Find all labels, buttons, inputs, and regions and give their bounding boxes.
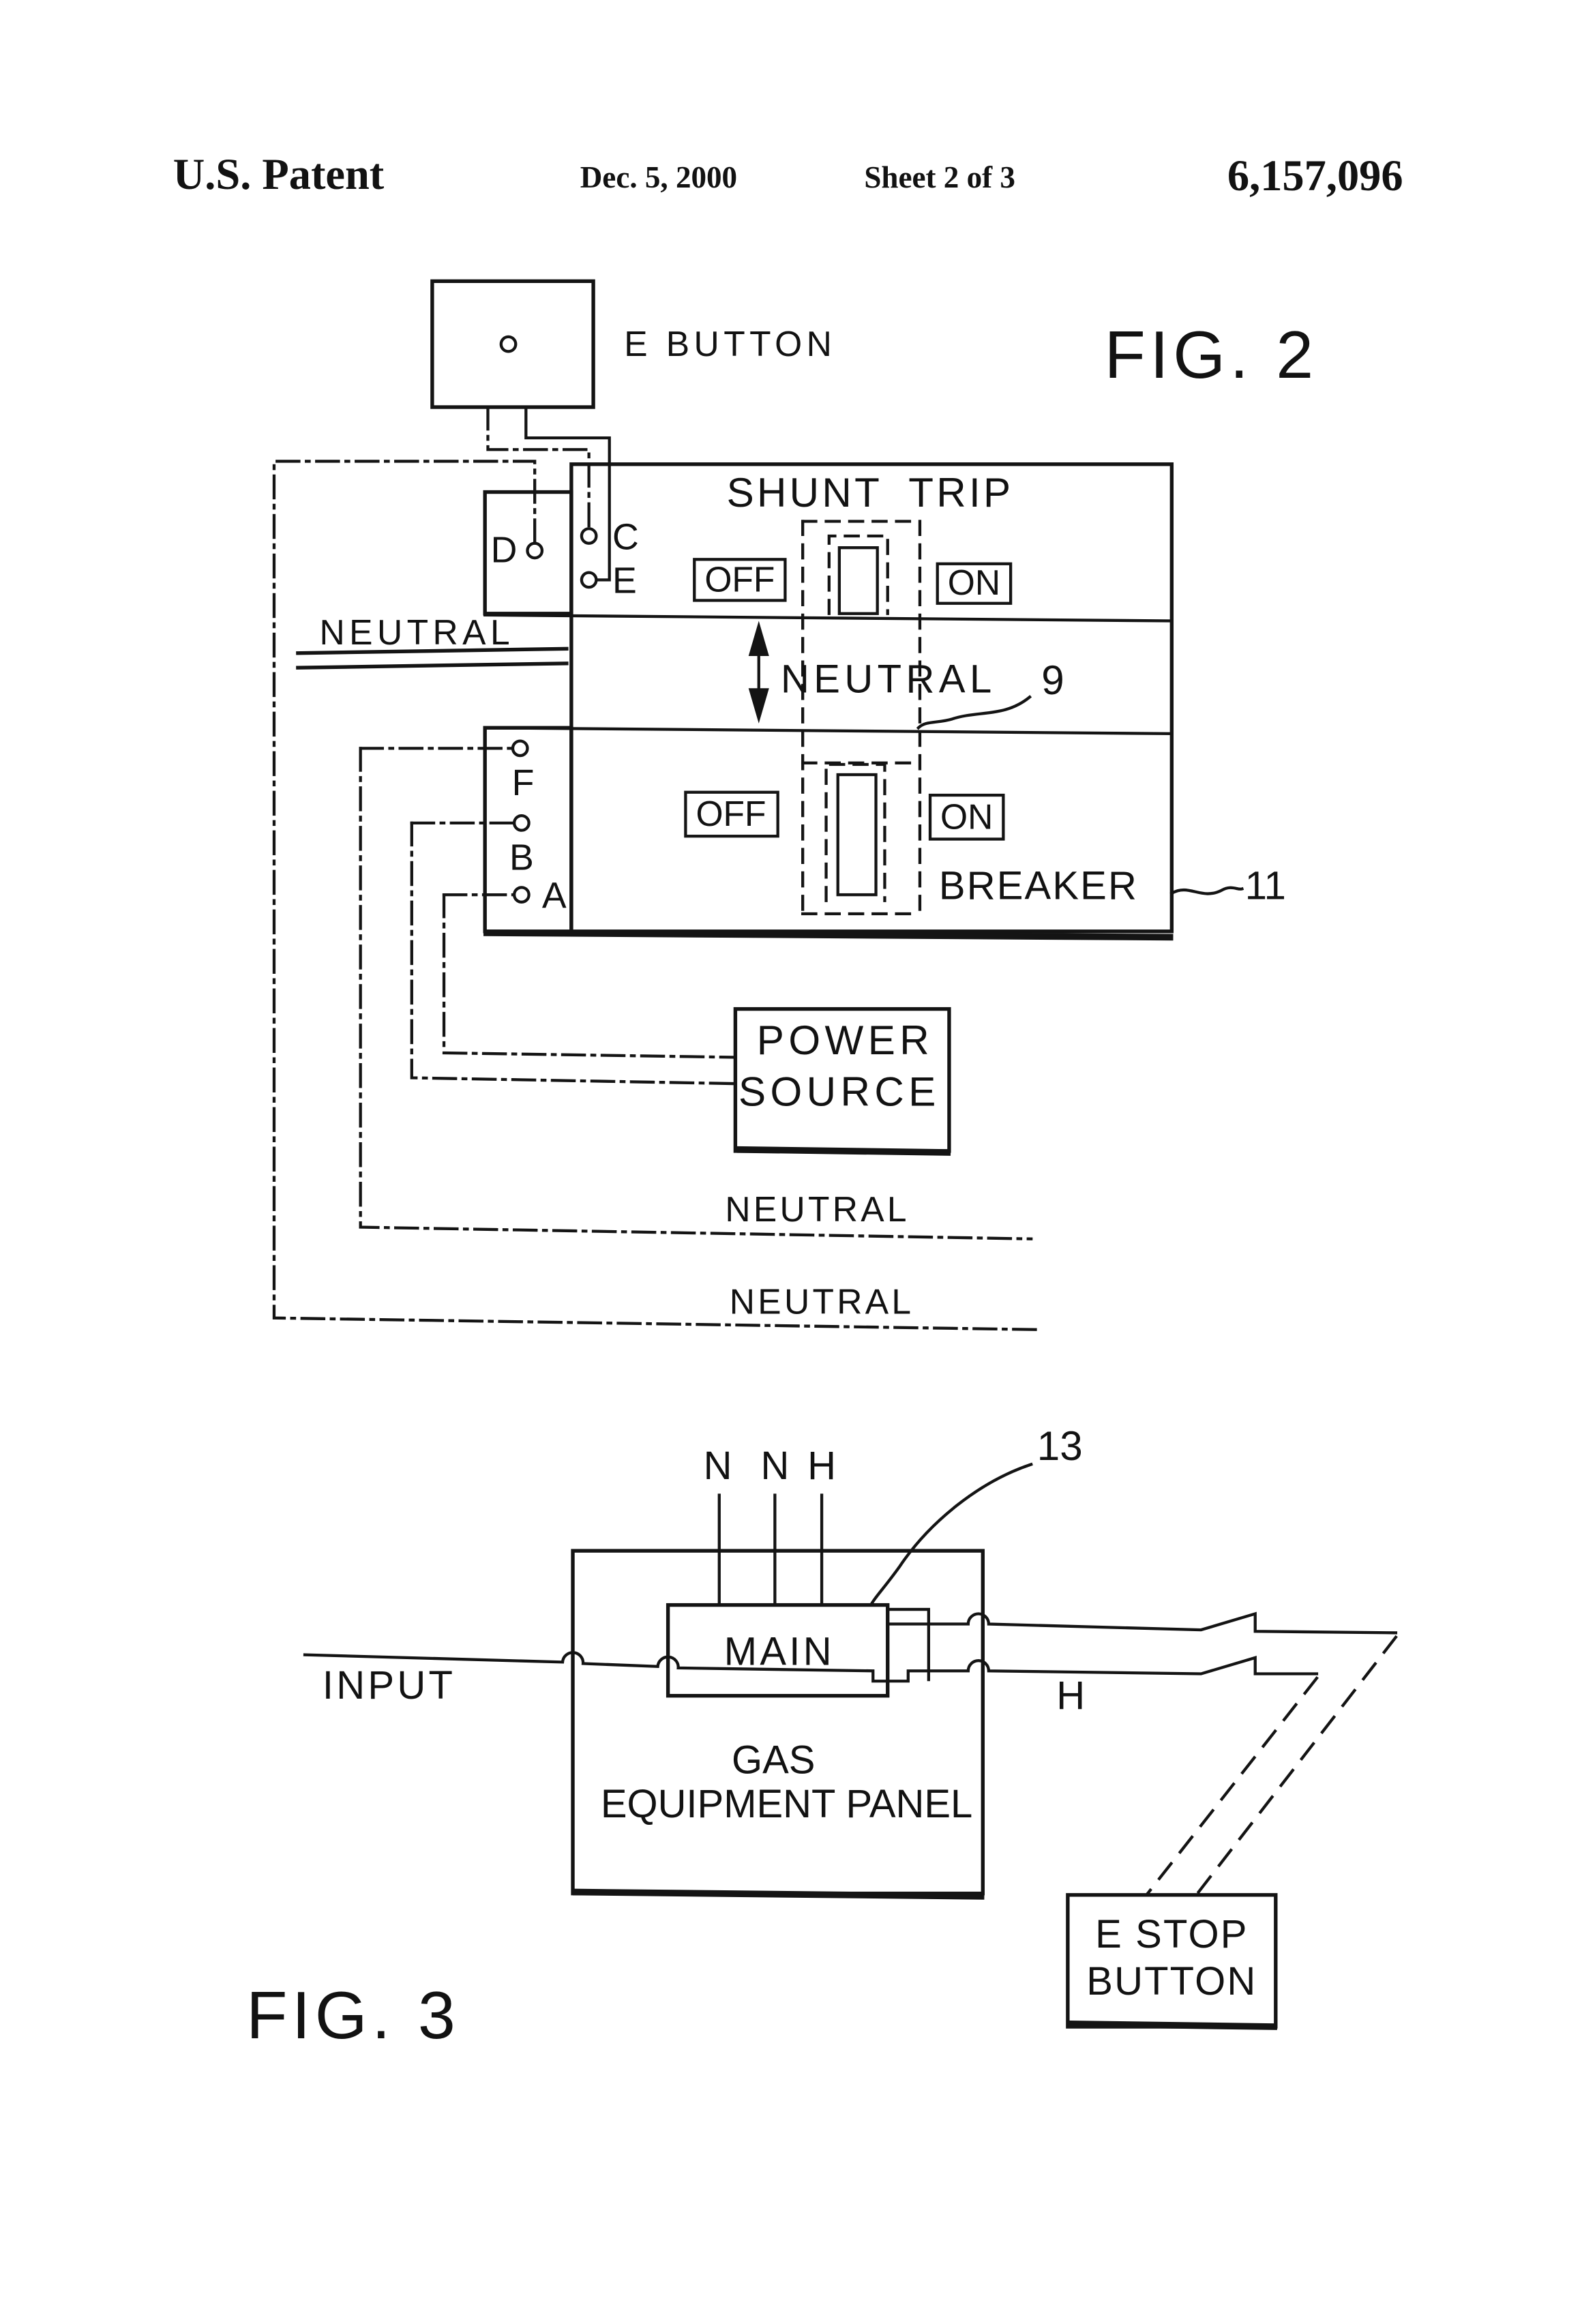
power-source-bottom-edge [737,1150,951,1152]
main-breaker-lug-box [888,1609,929,1680]
ref-9-label: 9 [1041,657,1064,703]
ref-11-label: 11 [1245,865,1286,908]
e-stop-line2: BUTTON [1086,1960,1257,2003]
patent-date: Dec. 5, 2000 [580,160,737,194]
rail-b-to-power [412,823,736,1084]
shunt-trip-handle [839,548,878,614]
rail-a-to-power [444,895,735,1057]
neutral-bus-line2 [296,664,568,668]
on-top-label: ON [948,563,1000,602]
terminal-e-contact [582,573,596,587]
terminal-a-contact [514,887,528,902]
e-stop-line1: E STOP [1095,1913,1248,1956]
power-source-line2: SOURCE [738,1069,940,1114]
patent-title: U.S. Patent [173,150,385,198]
fig3-diagram: FIG. 3 N N H 13 GAS EQUIPMENT PANEL MAIN… [246,1423,1396,2053]
ref-13-label: 13 [1037,1423,1083,1469]
ref-13-leader [870,1464,1031,1606]
neutral-line1-label: NEUTRAL [725,1189,910,1229]
patent-number: 6,157,096 [1227,151,1403,200]
gas-panel-line2: EQUIPMENT PANEL [601,1783,972,1826]
patent-sheet-number: Sheet 2 of 3 [864,160,1015,194]
wire-d-left-rail-neutral [274,461,1041,1329]
terminal-f-contact [513,741,527,756]
neutral-left-label: NEUTRAL [320,612,515,652]
shunt-trip-section-divider [485,615,1171,621]
wire-ebutton-to-c [488,407,588,527]
fig2-diagram: FIG. 2 E BUTTON D C E SHUNT TRIP OFF ON [274,281,1318,1330]
gas-panel-bottom-edge [573,1892,984,1896]
e-stop-bottom-edge [1069,2024,1277,2027]
neutral-arrow-down-head [749,688,769,724]
neutral-center-label: NEUTRAL [781,658,996,702]
neutral-arrow-up-head [749,621,769,657]
terminal-e-label: E [612,561,637,601]
patent-drawing-canvas: U.S. Patent Dec. 5, 2000 Sheet 2 of 3 6,… [0,0,1582,2324]
main-breaker-label: MAIN [724,1630,835,1674]
ref-11-leader [1171,888,1242,894]
breaker-section-divider [485,728,1171,734]
e-stop-lead-left [1146,1678,1317,1896]
neutral-line2-label: NEUTRAL [730,1281,914,1321]
off-bottom-label: OFF [696,794,766,833]
breaker-handle [838,775,876,895]
wire-h-top-label: H [807,1444,836,1488]
terminal-c-contact [582,528,596,543]
off-top-label: OFF [704,560,775,599]
terminal-c-label: C [612,516,639,557]
shunt-trip-label: SHUNT TRIP [727,470,1014,516]
e-button-contact [501,337,516,351]
breaker-label: BREAKER [939,865,1138,908]
patent-sheet-page: U.S. Patent Dec. 5, 2000 Sheet 2 of 3 6,… [0,0,1582,2324]
e-stop-lead-right [1195,1637,1396,1896]
gas-panel-line1: GAS [732,1739,815,1783]
wire-n2-label: N [760,1444,789,1488]
power-source-line1: POWER [757,1017,934,1063]
terminal-a-label: A [542,875,567,916]
terminal-b-label: B [509,837,534,878]
terminal-d-label: D [491,530,518,571]
input-label: INPUT [323,1664,456,1708]
fig2-label: FIG. 2 [1105,317,1318,392]
on-bottom-label: ON [940,796,993,836]
terminal-d-contact [527,543,541,558]
wire-h-right-label: H [1056,1674,1085,1718]
patent-header: U.S. Patent Dec. 5, 2000 Sheet 2 of 3 6,… [173,150,1403,200]
wire-n1-label: N [704,1444,732,1488]
ref-9-leader [919,697,1030,728]
fig3-label: FIG. 3 [246,1978,460,2053]
gas-equipment-panel-box [573,1551,983,1894]
output-wire-upper [888,1613,1396,1633]
terminal-b-contact [514,816,528,830]
e-button-label: E BUTTON [624,324,836,363]
breaker-unit-bottom-edge [483,933,1173,937]
terminal-f-label: F [512,762,535,803]
